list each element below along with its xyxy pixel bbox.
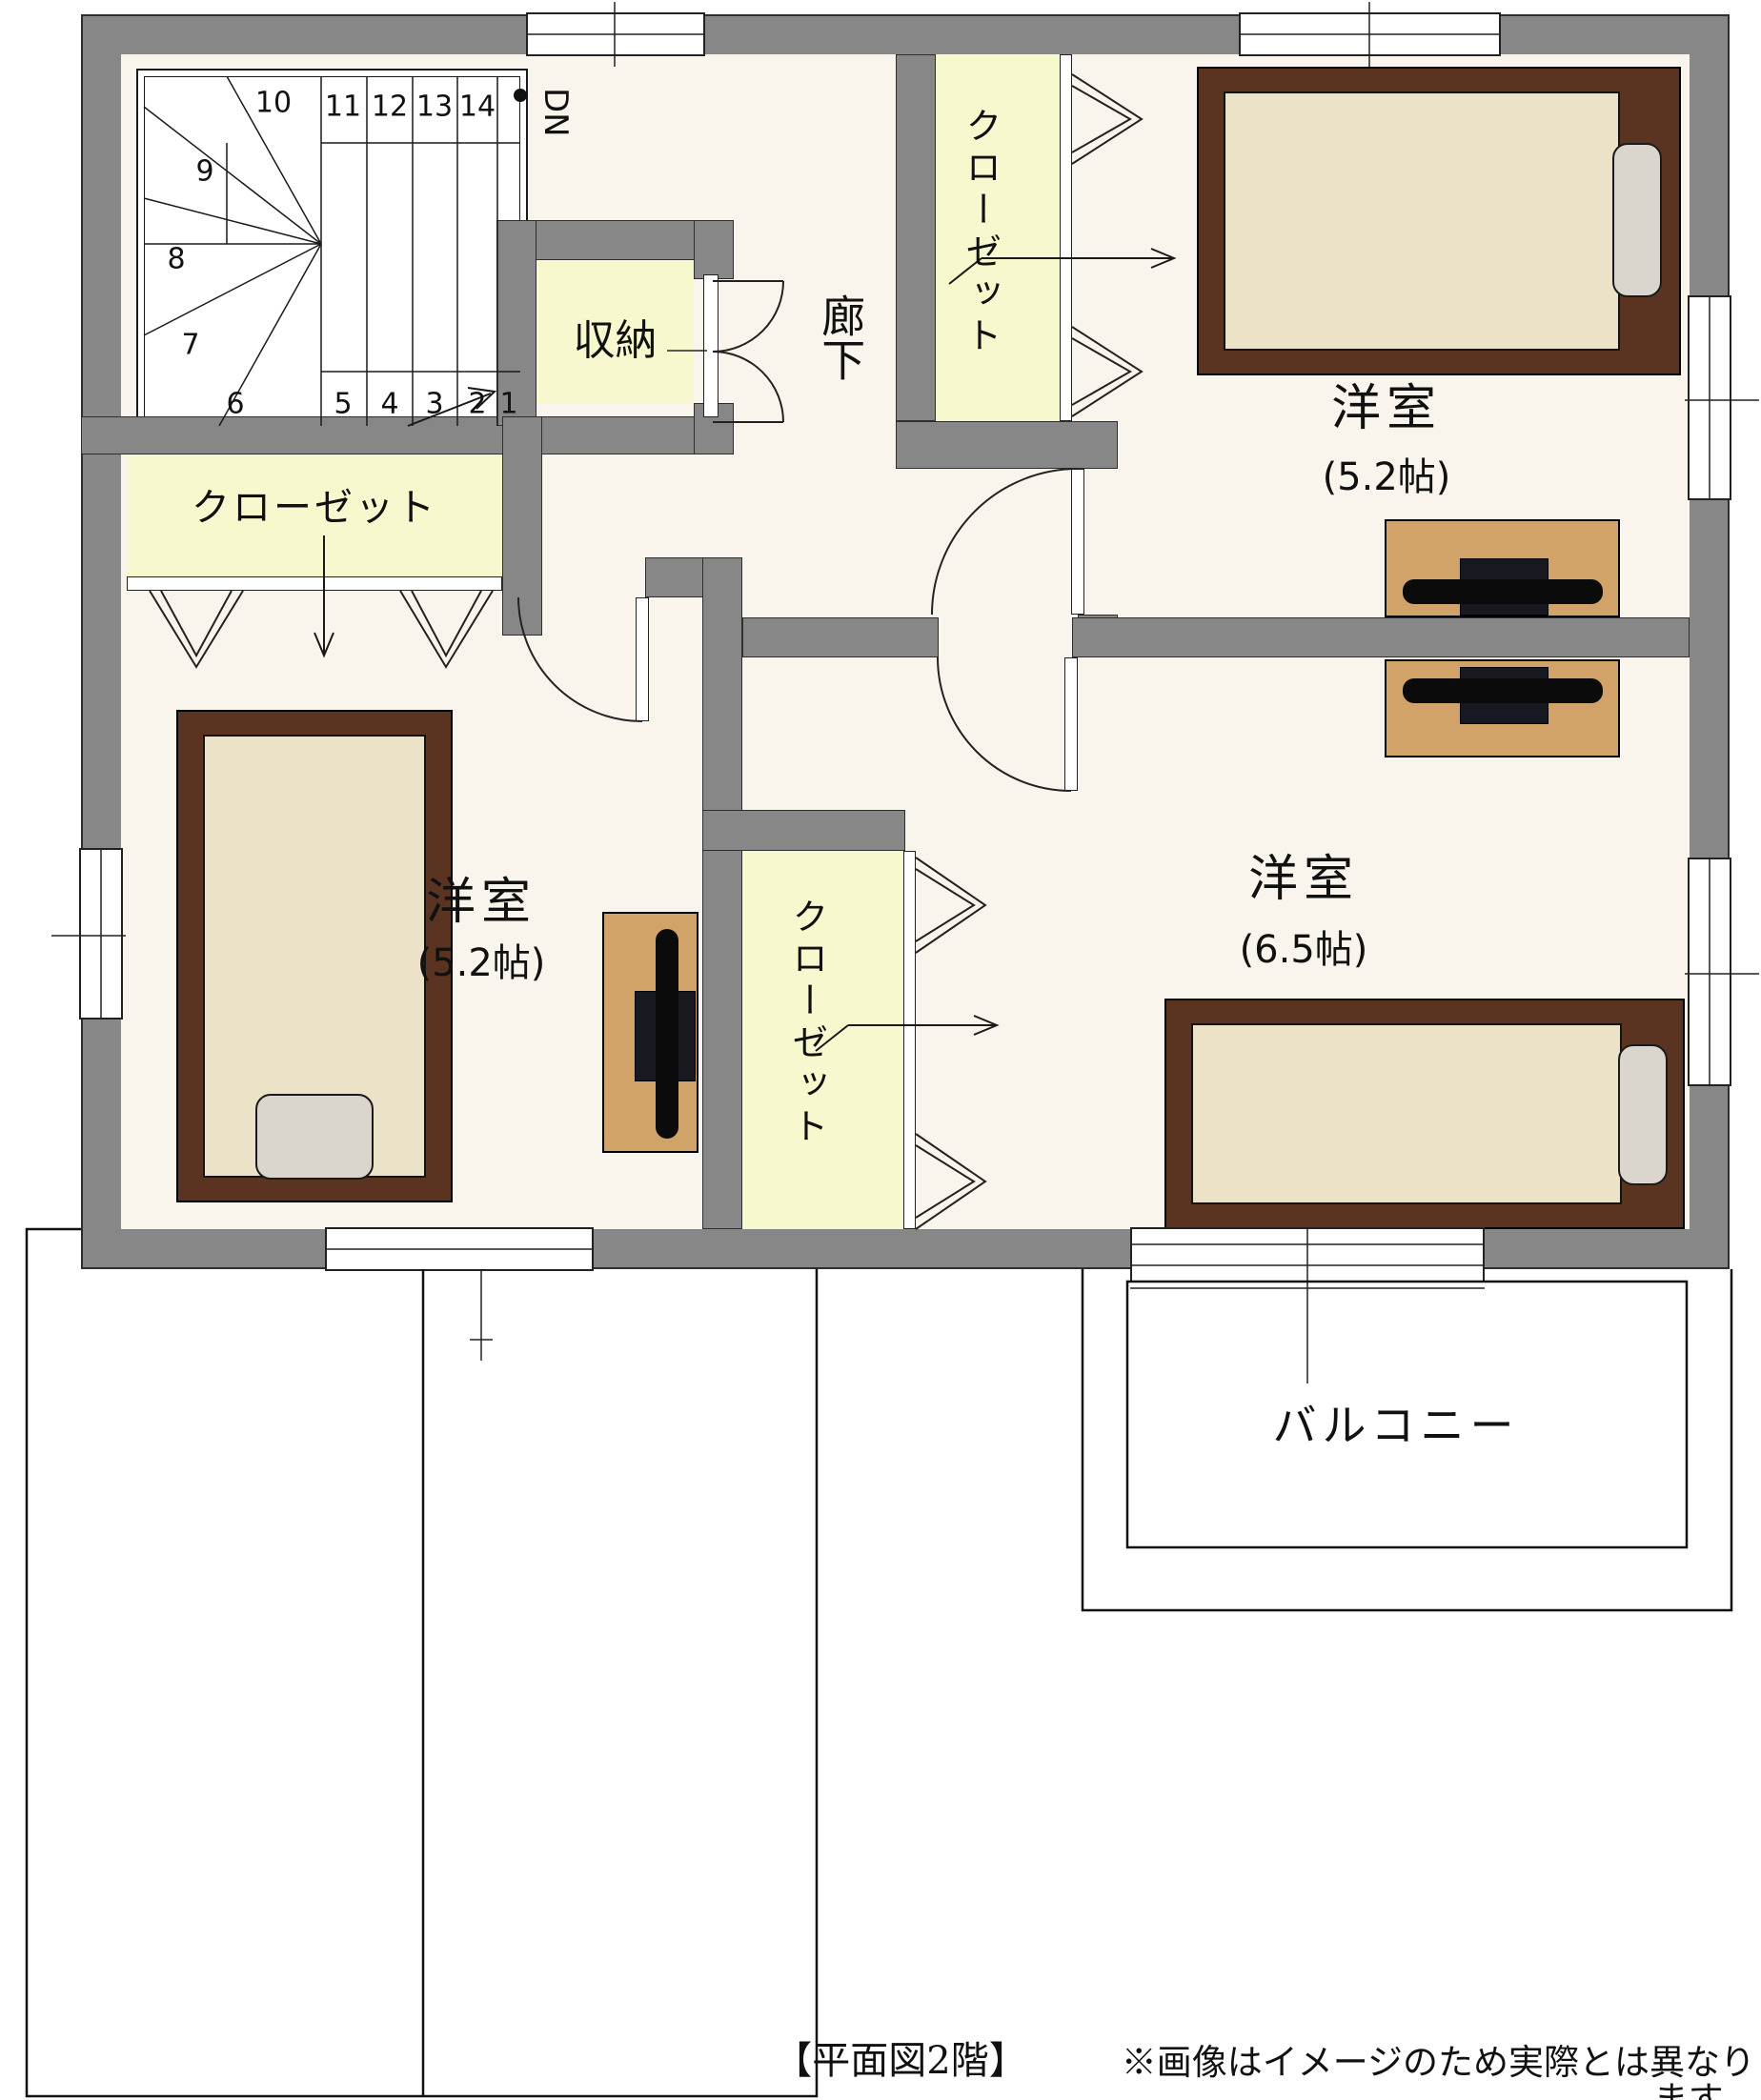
stair-step-number: 3: [425, 388, 443, 421]
stair-step-number: 8: [167, 243, 185, 276]
room-topright-name: 洋室: [1220, 383, 1553, 435]
stair-step-number: 10: [255, 87, 292, 120]
dn-dot: [514, 89, 527, 102]
dn-label: DN: [537, 88, 572, 137]
stair-step-number: 12: [372, 91, 408, 124]
storage-label: 収納: [536, 319, 694, 363]
stair-step-number: 6: [226, 388, 244, 421]
balcony-label: バルコニー: [1182, 1403, 1610, 1448]
stair-step-number: 14: [459, 91, 496, 124]
stair-lines: [144, 76, 520, 426]
closet-middle-label: クローゼット: [787, 898, 825, 1231]
room-topright-size: (5.2帖): [1220, 457, 1553, 497]
room-bottomright-size: (6.5帖): [1137, 930, 1470, 970]
plan-title: 【平面図2階】: [762, 2041, 1039, 2081]
stair-step-number: 11: [325, 91, 361, 124]
room-bottomleft-size: (5.2帖): [314, 943, 648, 983]
hallway-label: 廊下: [818, 293, 863, 455]
stair-step-number: 9: [195, 155, 213, 189]
stair-step-number: 7: [181, 329, 199, 362]
stair-step-number: 2: [468, 388, 486, 421]
stair-step-number: 5: [334, 388, 352, 421]
disclaimer-text: ※画像はイメージのため実際とは異なります。: [1096, 2045, 1755, 2100]
closet-top-label: クローゼット: [961, 107, 999, 421]
first-floor-outline: [27, 1229, 817, 2096]
room-bottomleft-name: 洋室: [314, 877, 648, 929]
room-bottomright-name: 洋室: [1137, 854, 1470, 906]
window-midlines: [51, 2, 1759, 1383]
plan-linework: [0, 0, 1761, 2100]
stair-step-number: 4: [380, 388, 398, 421]
stair-step-number: 1: [499, 388, 517, 421]
stair-step-number: 13: [416, 91, 453, 124]
floor-plan-page: 1 2 3 4 5 6 7 8 9 10 11 12 13 14 DN 収納 廊…: [0, 0, 1761, 2100]
closet-left-label: クローゼット: [152, 488, 476, 528]
